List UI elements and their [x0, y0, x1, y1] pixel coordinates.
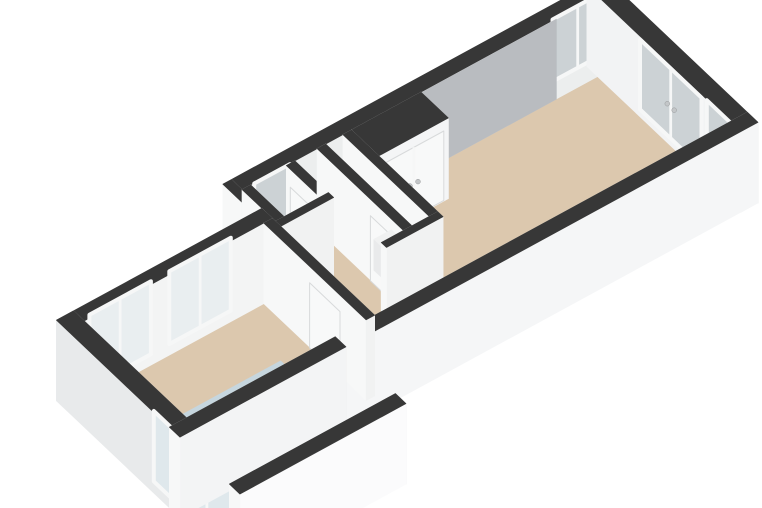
floorplan-3d-render: 3D floor plan render — upper floor with … [0, 0, 762, 508]
closet-doors-handle-icon [416, 179, 421, 184]
french-doors-handle-icon [665, 101, 670, 106]
french-doors-handle-icon [672, 108, 677, 113]
floorplan-viewport: 3D floor plan render — upper floor with … [0, 0, 762, 508]
